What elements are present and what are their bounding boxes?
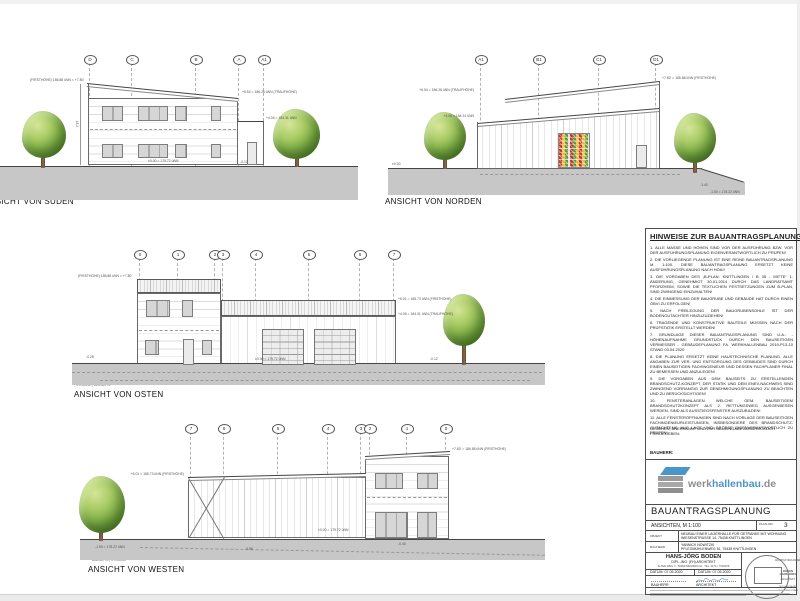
stamp-chamber: ARCHITEKTENKAMMER <box>767 560 800 562</box>
logo-word-werk: werk <box>688 478 712 490</box>
dim-text: +6.01 = 185.73 üNN (FIRSTHÖHE) <box>120 472 184 476</box>
dim-text: -0.95 <box>245 547 253 551</box>
view-label: ANSICHT VON OSTEN <box>74 390 163 399</box>
grid-bubble: 4 <box>322 424 335 434</box>
window <box>417 473 438 489</box>
bauherr-line2: PFLEGMÜHLENWEG 51, 75438 KNITTLINGEN <box>681 547 793 551</box>
grid-bubble: D <box>84 55 97 65</box>
ground <box>0 166 358 200</box>
window <box>375 512 408 538</box>
note-item: 6. TRAGENDE UND KONSTRUKTIVE BAUTEILE MÜ… <box>650 320 793 330</box>
dim-text: +6.01 = 185.73 üNN (FIRSTHÖHE) <box>398 297 451 301</box>
note-item: 7. GRUNDLAGE DIESER BAUANTRAGSPLANUNG SI… <box>650 332 793 352</box>
foundation-line <box>480 174 680 175</box>
note-item: 8. DIE PLANUNG ERSETZT KEINE HAUSTECHNIS… <box>650 354 793 374</box>
ground <box>72 363 545 385</box>
grid-bubble: C <box>126 55 139 65</box>
grid-bubble: 6 <box>218 424 231 434</box>
architect-name: HANS-JÖRG BODEN <box>646 554 741 560</box>
window <box>175 106 187 121</box>
dim-text: -0.28 <box>86 355 94 359</box>
dim-text: +7.80' = 186.88 üNN (FIRSTHÖHE) <box>452 447 506 451</box>
floor-slab-line <box>90 129 236 130</box>
annex-door <box>247 142 257 165</box>
sheet-name: ANSICHTEN, M 1:100 <box>651 523 701 529</box>
note-item: 9. DIE VORGABEN AUS DEM BAUSEITS ZU ERST… <box>650 376 793 396</box>
plan-type-title: BAUANTRAGSPLANUNG <box>651 506 771 517</box>
objekt-line2: WIESENSTRASSE 14, 75438 KNITTLINGEN <box>681 536 793 540</box>
hall-door <box>636 145 647 168</box>
dim-text: +7.80' = 186.88 üNN (FIRSTHÖHE) <box>662 76 716 80</box>
tree <box>424 112 466 160</box>
tree <box>674 113 716 163</box>
window <box>146 300 170 317</box>
plan-nr-value: 3 <box>784 522 788 529</box>
dim-text: ±0.00 = 179.72 üNN <box>148 159 178 163</box>
grid-bubble: 5 <box>272 424 285 434</box>
tree <box>443 294 485 346</box>
window <box>211 106 221 121</box>
window <box>138 106 168 121</box>
logo-word-de: .de <box>761 478 776 490</box>
divider <box>756 520 757 530</box>
floor-slab-line <box>367 497 447 498</box>
dim-text: ±0.00 = 179.72 üNN <box>255 357 285 361</box>
window <box>175 144 187 158</box>
divider <box>646 504 796 505</box>
grid-bubble: 2 <box>364 424 377 434</box>
divider <box>646 520 796 521</box>
logo-box-top-icon <box>660 467 691 475</box>
grid-bubble: B1 <box>533 55 546 65</box>
window <box>375 473 403 489</box>
architect-address: ALTER WEG 3 · 66999 MEILBRUCH · TEL. 017… <box>646 565 741 568</box>
datum-right: DATUM: 07.05.2020 <box>698 570 731 574</box>
parapet-line-rear <box>505 81 659 103</box>
window <box>102 106 123 121</box>
hall-facade <box>221 316 396 365</box>
stamp-role: ARCHITEKT <box>767 578 800 581</box>
note-item: 3. DIE VORGABEN DES „B-PLAN: KNITTLINGEN… <box>650 274 793 294</box>
dim-text: +4.06 = 184.31 üNN <box>266 116 297 120</box>
grid-bubble: 7 <box>388 250 401 260</box>
dim-text: +6.54 = 186.26 üNN (TRAUFHÖHE) <box>242 90 297 94</box>
window <box>211 144 221 158</box>
dim-text: -0.45 <box>398 542 406 546</box>
grid-bubble: 5 <box>303 250 316 260</box>
dim-text: -1.40 <box>700 183 708 187</box>
dim-chain <box>80 84 81 165</box>
grid-bubble: 0 <box>134 250 147 260</box>
stamp-name2: HANS-JÖRG <box>767 572 800 576</box>
window <box>138 144 168 158</box>
grid-bubble: 4 <box>250 250 263 260</box>
dim-text: -0.12 <box>240 160 248 164</box>
dim-text: -1.50 = 178.22 üNN <box>710 190 740 194</box>
divider <box>741 552 742 587</box>
grid-bubble: 0 <box>440 424 453 434</box>
dim-text: +6.54 = 186.26 üNN (TRAUFHÖHE) <box>408 88 474 92</box>
note-item: 5. NACH FREILEGUNG DER BAUGRUBENSOHLE IS… <box>650 308 793 318</box>
house-door <box>183 339 194 365</box>
dim-text: 7.97 <box>75 121 79 128</box>
objekt-value: NEUBAU EINER LAGERHALLE FÜR GETRÄNKE MIT… <box>681 532 793 540</box>
divider <box>678 541 679 552</box>
foundation-line <box>72 372 542 373</box>
fine-print-line <box>650 595 746 596</box>
grid-bubble: A1 <box>258 55 271 65</box>
logo-box-side-icon <box>658 482 683 487</box>
window <box>102 144 123 158</box>
dim-text: (FIRSTHÖHE) 186.88 üNN = +7.80' <box>18 78 84 82</box>
fine-print-line <box>650 593 790 594</box>
plan-nr-label: PLAN-NR. <box>759 522 773 526</box>
grid-bubble: 3 <box>217 250 230 260</box>
floor-slab-line <box>139 330 219 331</box>
release-note: GESEHEN, ANERKANNT UND ZUR BAUEINGABE AU… <box>650 426 793 436</box>
sheet-top-edge <box>0 0 800 4</box>
ground <box>388 168 702 195</box>
tree <box>79 476 125 533</box>
window <box>202 340 212 355</box>
grid-bubble: C1 <box>593 55 606 65</box>
divider <box>646 587 796 588</box>
window <box>417 512 437 538</box>
dim-text: ±0.00 = 179.72 üNN <box>318 528 348 532</box>
plan-sheet: { "views": { "sued": { "label": "ANSICHT… <box>0 0 800 600</box>
notes-and-titleblock-panel: HINWEISE ZUR BAUANTRAGSPLANUNG: 1. ALLE … <box>645 228 797 595</box>
note-item: 10. FENSTERANLAGEN WELCHE GEM. BAUSEITIG… <box>650 398 793 413</box>
bauherr-value: YANNICK NOWITZKI PFLEGMÜHLENWEG 51, 7543… <box>681 543 793 551</box>
notes-list: 1. ALLE MASSE UND HÖHEN SIND VOR DER AUS… <box>650 245 793 437</box>
window <box>182 300 193 317</box>
sectional-door <box>314 329 356 365</box>
window <box>145 340 159 355</box>
grid-bubble: 7 <box>185 424 198 434</box>
dim-text: (FIRSTHÖHE) 186.88 üNN = +7.80' <box>70 274 132 278</box>
edge-line <box>88 83 89 98</box>
dim-text: +4.06 = 184.31 üNN (TRAUFHÖHE) <box>398 312 453 316</box>
objekt-label: OBJEKT <box>650 534 662 538</box>
sig-architekt-label: ARCHITEKT <box>696 581 736 587</box>
architect-title: DIPL.-ING. (FH) ARCHITEKT <box>646 560 741 564</box>
dim-text: -0.12 <box>430 357 438 361</box>
logo-word-hallenbau: hallenbau <box>712 478 761 490</box>
house-roof <box>137 279 221 293</box>
grid-bubble: 6 <box>354 250 367 260</box>
view-label: ANSICHT VON WESTEN <box>88 565 184 574</box>
dim-text: ±0.00 <box>392 162 400 166</box>
grid-bubble: A1 <box>475 55 488 65</box>
foundation-line <box>100 380 530 381</box>
dim-text: -1.50 = 178.22 üNN <box>95 545 125 549</box>
bauherr-label: BAUHERR <box>650 545 665 549</box>
hall-roof <box>221 300 396 316</box>
notes-title: HINWEISE ZUR BAUANTRAGSPLANUNG: <box>650 232 800 241</box>
mosaic-wall-art <box>558 133 590 168</box>
grid-bubble: D1 <box>650 55 663 65</box>
grid-bubble: 1 <box>401 424 414 434</box>
view-label: ANSICHT VON NORDEN <box>385 197 482 206</box>
datum-left: DATUM: 07.05.2020 <box>650 570 683 574</box>
sig-bauherr-label: BAUHERR <box>651 581 686 587</box>
grid-bubble: A <box>233 55 246 65</box>
bauherr-signoff-label: BAUHERR: <box>650 450 673 455</box>
grid-bubble: B <box>190 55 203 65</box>
fine-print-line <box>650 590 790 591</box>
logo-wordmark: werkhallenbau.de <box>688 478 776 490</box>
logo-box-side-icon <box>658 476 683 481</box>
dim-text: +4.06 = 184.31 üNN <box>428 114 474 118</box>
edge-line <box>659 81 660 168</box>
tree <box>22 111 66 158</box>
note-item: 4. DIE EINMESSUNG DER BAUGRUBE UND GEBÄU… <box>650 296 793 306</box>
note-item: 1. ALLE MASSE UND HÖHEN SIND VOR DER AUS… <box>650 245 793 255</box>
logo-box-side-icon <box>658 488 683 493</box>
divider <box>678 530 679 541</box>
edge-line <box>477 122 478 168</box>
note-item: 2. DIE VORLIEGENDE PLANUNG IST EINE REIN… <box>650 257 793 272</box>
grid-bubble: 1 <box>172 250 185 260</box>
divider <box>646 459 796 460</box>
